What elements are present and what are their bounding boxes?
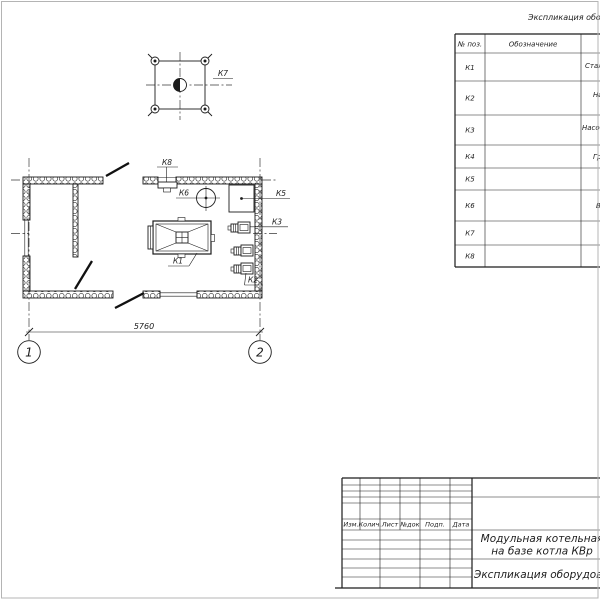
equipment-k8: К8 [157,158,178,192]
row-name-k2: На [593,91,600,99]
revision-header-ndok: №док [399,521,419,529]
partition-wall [73,184,78,257]
wall-segment [23,256,30,291]
col-header-pos: № поз. [457,41,482,49]
revision-header-kolich: Колич. [359,521,382,529]
plan-label-k8: К8 [162,158,172,167]
row-name-k4: Гр [593,153,600,161]
exterior-walls [23,177,262,298]
drawing-canvas: К1 К3 К2 [0,0,600,600]
leader-line [189,253,197,266]
floor-plan: К1 К3 К2 [11,52,290,363]
plan-label-k6: К6 [179,189,189,198]
row-pos-k5: К5 [465,176,475,184]
equipment-table-title: Экспликация обору [527,13,600,22]
row-pos-k6: К6 [465,202,475,210]
wall-segment [176,177,262,184]
project-title-line1: Модульная котельная [481,533,600,545]
equipment-k6: К6 [176,186,220,211]
table-rows: К1 Стал К2 На К3 Насос К4 Гр К5 К6 В К7 … [465,62,600,261]
dimension-text: 5760 [134,322,154,331]
row-pos-k8: К8 [465,253,475,261]
dimension-5760: 5760 [25,322,264,336]
revision-header-izm: Изм. [343,521,358,529]
col-header-designation: Обозначение [509,41,558,49]
window-bottom [160,291,197,298]
door-leaf-top [106,163,129,176]
plan-label-k5: К5 [276,189,286,198]
equipment-table: Экспликация обору № поз. Обозначение К1 … [455,13,600,267]
door-leaf-bottom [115,293,144,308]
row-pos-k3: К3 [465,127,474,135]
axis-number-1: 1 [25,346,33,360]
row-pos-k1: К1 [465,64,474,72]
title-block: Изм. Колич. Лист №док Подп. Дата Модульн… [335,478,600,588]
equipment-k7-foundation: К7 [146,52,233,120]
drawing-sheet: К1 К3 К2 [0,0,600,600]
wall-segment [197,291,262,298]
wall-segment [143,291,160,298]
row-pos-k4: К4 [465,153,474,161]
plan-label-k3: К3 [272,218,282,227]
axis-number-2: 2 [256,346,264,360]
axis-bubble-1: 1 [18,341,41,364]
revision-header-data: Дата [452,521,470,529]
plan-label-k1: К1 [173,257,183,266]
wall-segment [23,184,30,220]
plan-label-k2: К2 [248,276,258,285]
revision-header-list: Лист [381,521,399,529]
wall-segment [23,177,103,184]
door-leaf-interior [75,261,92,289]
wall-segment [143,177,158,184]
sheet-border [2,2,599,599]
sheet-title: Экспликация оборудован [473,569,600,581]
axis-bubble-2: 2 [249,341,272,364]
project-title-line2: на базе котла КВр [491,546,593,558]
row-pos-k2: К2 [465,95,475,103]
row-name-k3: Насос [582,124,600,132]
wall-segment [23,291,113,298]
equipment-k1-boiler: К1 [148,218,215,267]
row-pos-k7: К7 [465,230,475,238]
revision-header-podp: Подп. [425,521,445,529]
plan-label-k7: К7 [218,69,228,78]
leader-line [245,273,247,285]
